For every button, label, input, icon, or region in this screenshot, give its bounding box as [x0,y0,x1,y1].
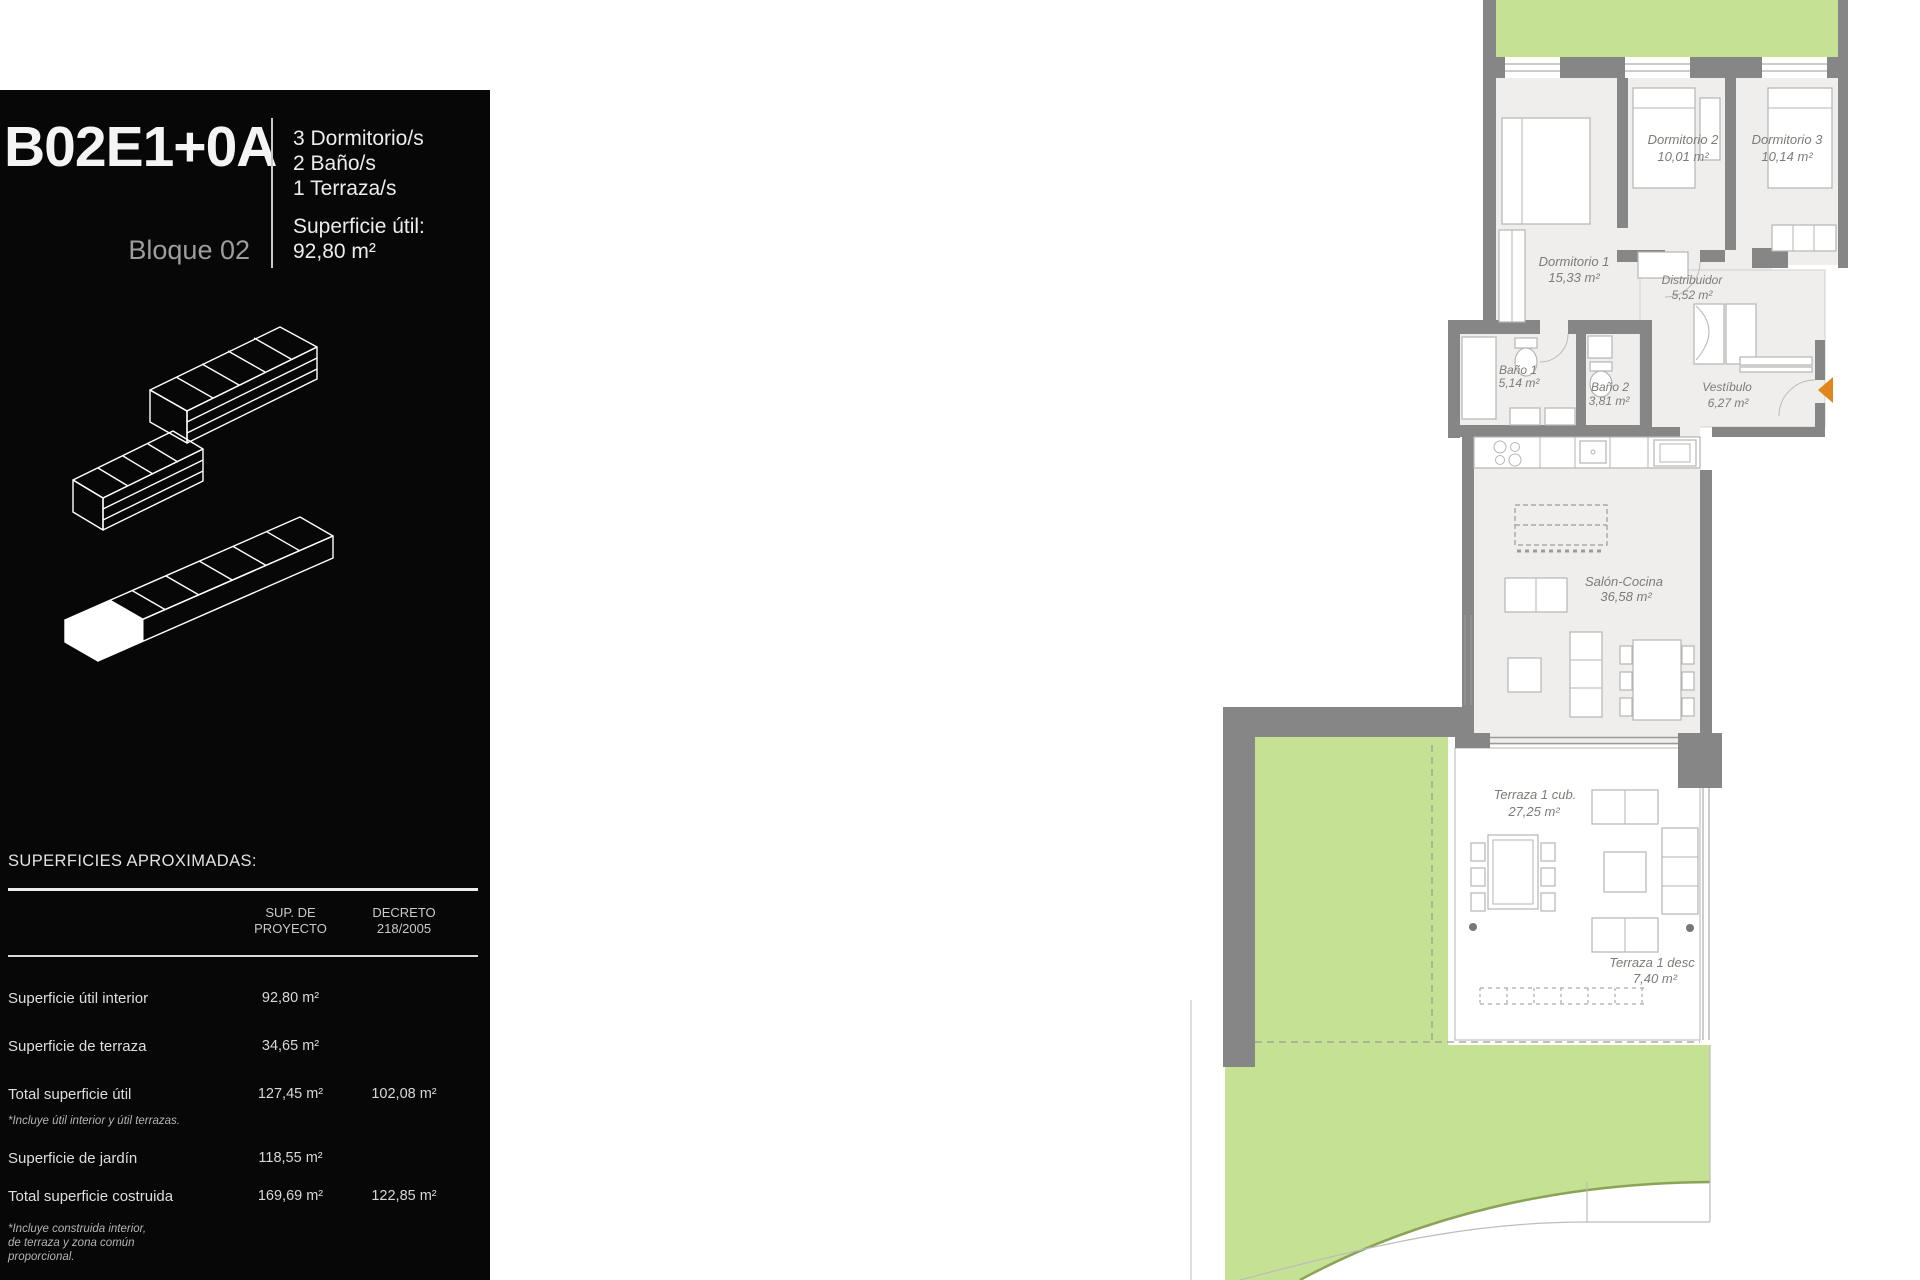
feature-bathrooms: 2 Baño/s [293,151,424,176]
table-footnote: *Incluye útil interior y útil terrazas. [8,1114,180,1128]
table-row: Superficie de jardín 118,55 m² [0,1150,490,1172]
row-proyecto-value: 127,45 m² [233,1086,348,1102]
room-label-dormitorio1: Dormitorio 1 [1539,254,1610,269]
unit-code: B02E1+0A [4,114,276,180]
room-label-salon: Salón-Cocina [1585,574,1663,589]
useful-surface: Superficie útil: 92,80 m² [293,214,425,264]
room-label-vestibulo: Vestíbulo [1702,380,1752,394]
table-footnote: *Incluye construida interior, de terraza… [8,1222,146,1264]
brochure-sheet: Dormitorio 1 15,33 m² Dormitorio 2 10,01… [0,0,1920,1280]
unit-features: 3 Dormitorio/s 2 Baño/s 1 Terraza/s [293,126,424,201]
table-title: SUPERFICIES APROXIMADAS: [8,852,257,871]
building-wireframe [55,305,385,805]
room-area-dormitorio3: 10,14 m² [1761,149,1813,164]
room-area-dormitorio2: 10,01 m² [1657,149,1709,164]
highlighted-unit [65,600,143,661]
title-divider [271,118,273,268]
room-label-bano2: Baño 2 [1591,380,1629,394]
row-label: Total superficie costruida [8,1188,173,1205]
room-area-vestibulo: 6,27 m² [1708,396,1750,410]
surface-label: Superficie útil: [293,214,425,239]
room-label-terraza-cub: Terraza 1 cub. [1494,787,1577,802]
row-proyecto-value: 118,55 m² [233,1150,348,1166]
room-label-dormitorio2: Dormitorio 2 [1648,132,1720,147]
row-label: Total superficie útil [8,1086,131,1103]
table-rule-header [8,955,478,957]
room-area-bano2: 3,81 m² [1589,394,1631,408]
room-label-bano1: Baño 1 [1499,363,1537,377]
room-area-terraza-desc: 7,40 m² [1633,971,1678,986]
column-header-decreto: DECRETO 218/2005 [348,905,460,937]
row-proyecto-value: 34,65 m² [233,1038,348,1054]
room-area-dormitorio1: 15,33 m² [1548,270,1600,285]
table-row: Superficie útil interior 92,80 m² [0,990,490,1012]
room-area-bano1: 5,14 m² [1499,376,1541,390]
table-row: Superficie de terraza 34,65 m² [0,1038,490,1060]
column-header-proyecto: SUP. DE PROYECTO [233,905,348,937]
row-decreto-value: 122,85 m² [348,1188,460,1204]
feature-terraces: 1 Terraza/s [293,176,424,201]
row-label: Superficie de jardín [8,1150,137,1167]
info-panel: B02E1+0A 3 Dormitorio/s 2 Baño/s 1 Terra… [0,90,490,1280]
row-proyecto-value: 92,80 m² [233,990,348,1006]
room-label-terraza-desc: Terraza 1 desc [1609,955,1695,970]
table-rule-top [8,888,478,891]
row-label: Superficie útil interior [8,990,148,1007]
table-row: Total superficie útil 127,45 m² 102,08 m… [0,1086,490,1108]
row-label: Superficie de terraza [8,1038,146,1055]
row-decreto-value: 102,08 m² [348,1086,460,1102]
row-proyecto-value: 169,69 m² [233,1188,348,1204]
table-row: Total superficie costruida 169,69 m² 122… [0,1188,490,1210]
room-label-distribuidor: Distribuidor [1662,273,1724,287]
room-area-distribuidor: 5,52 m² [1672,288,1714,302]
surface-value: 92,80 m² [293,239,425,264]
block-label: Bloque 02 [90,235,250,266]
room-area-terraza-cub: 27,25 m² [1507,804,1560,819]
feature-bedrooms: 3 Dormitorio/s [293,126,424,151]
room-area-salon: 36,58 m² [1600,589,1652,604]
room-label-dormitorio3: Dormitorio 3 [1752,132,1824,147]
